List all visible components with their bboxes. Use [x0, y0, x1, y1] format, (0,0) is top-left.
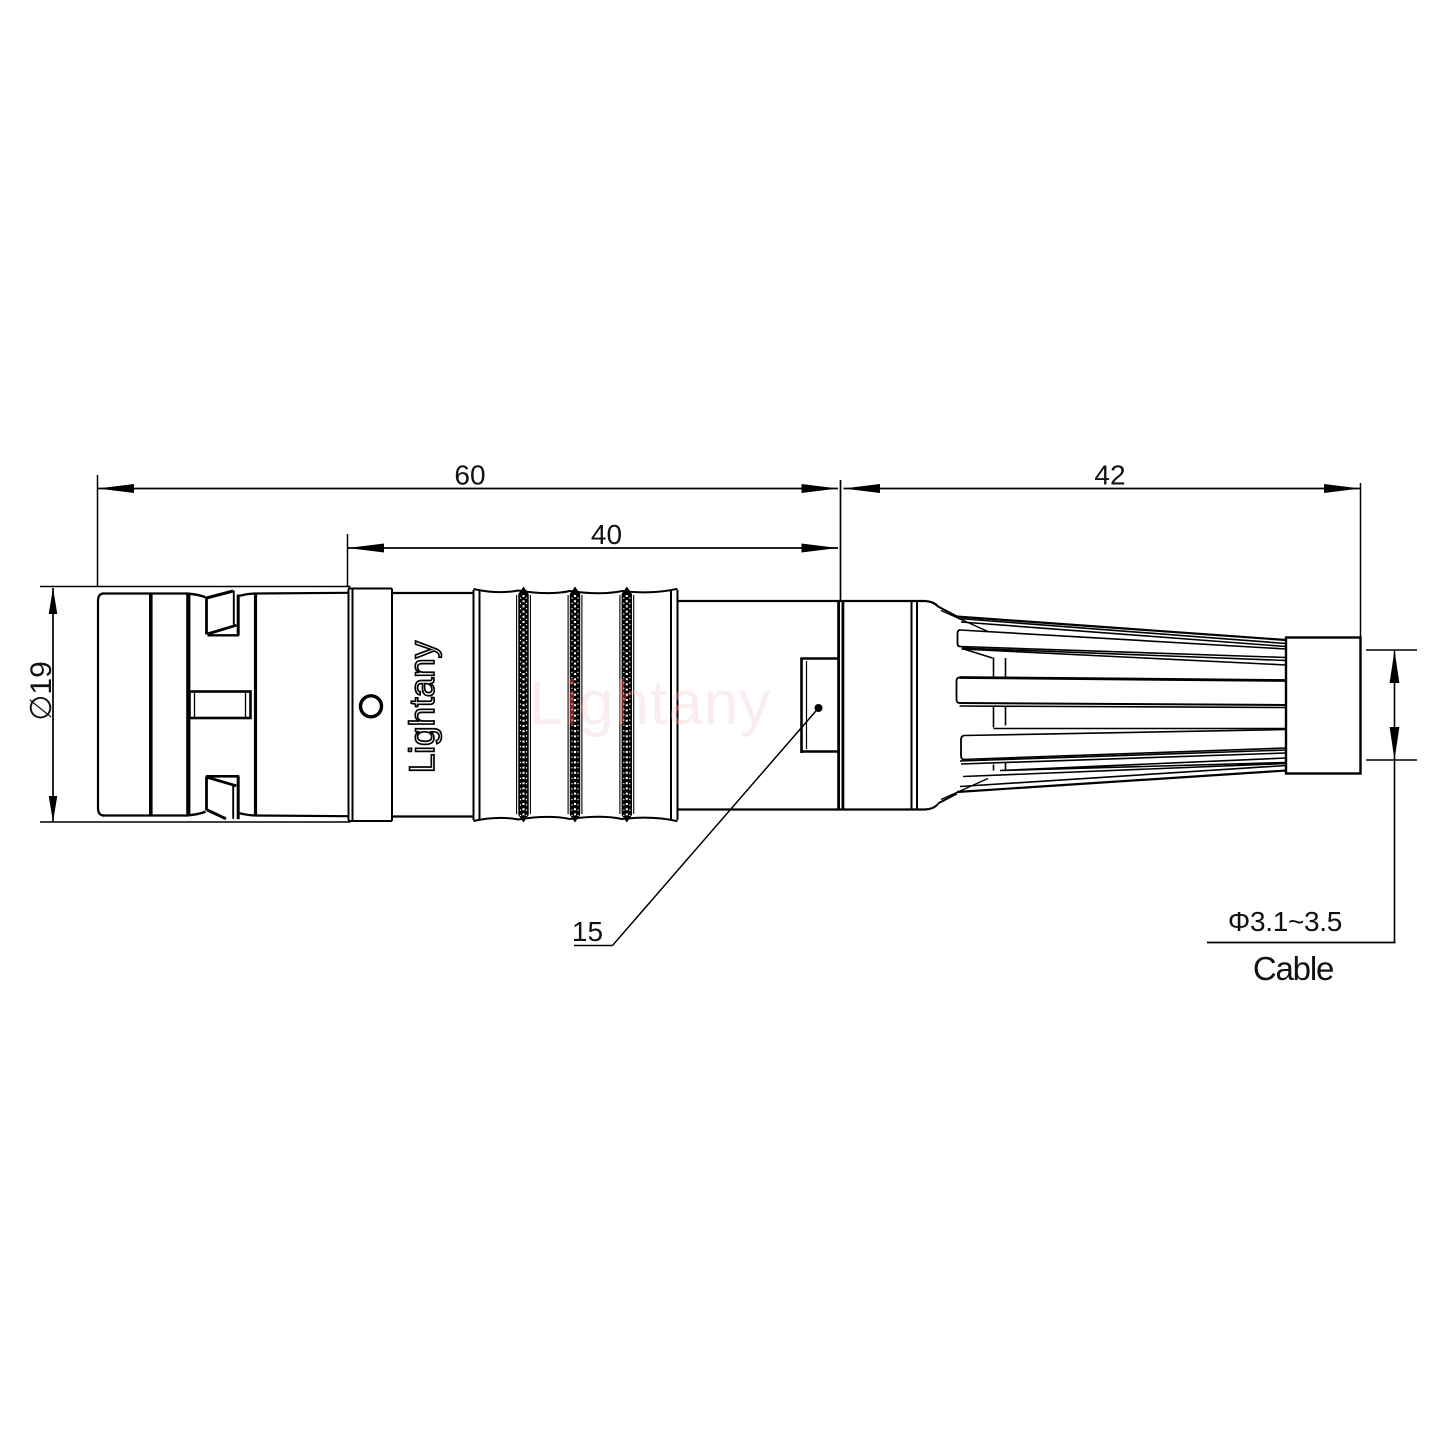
svg-text:60: 60: [454, 460, 485, 491]
svg-text:Φ3.1~3.5: Φ3.1~3.5: [1228, 906, 1342, 937]
svg-text:Cable: Cable: [1253, 950, 1333, 987]
svg-text:40: 40: [591, 519, 622, 550]
svg-text:Lightany: Lightany: [529, 669, 771, 738]
svg-text:42: 42: [1094, 460, 1125, 491]
svg-text:Lightany: Lightany: [403, 640, 442, 773]
svg-text:15: 15: [572, 916, 603, 947]
svg-text:∅19: ∅19: [25, 661, 58, 721]
